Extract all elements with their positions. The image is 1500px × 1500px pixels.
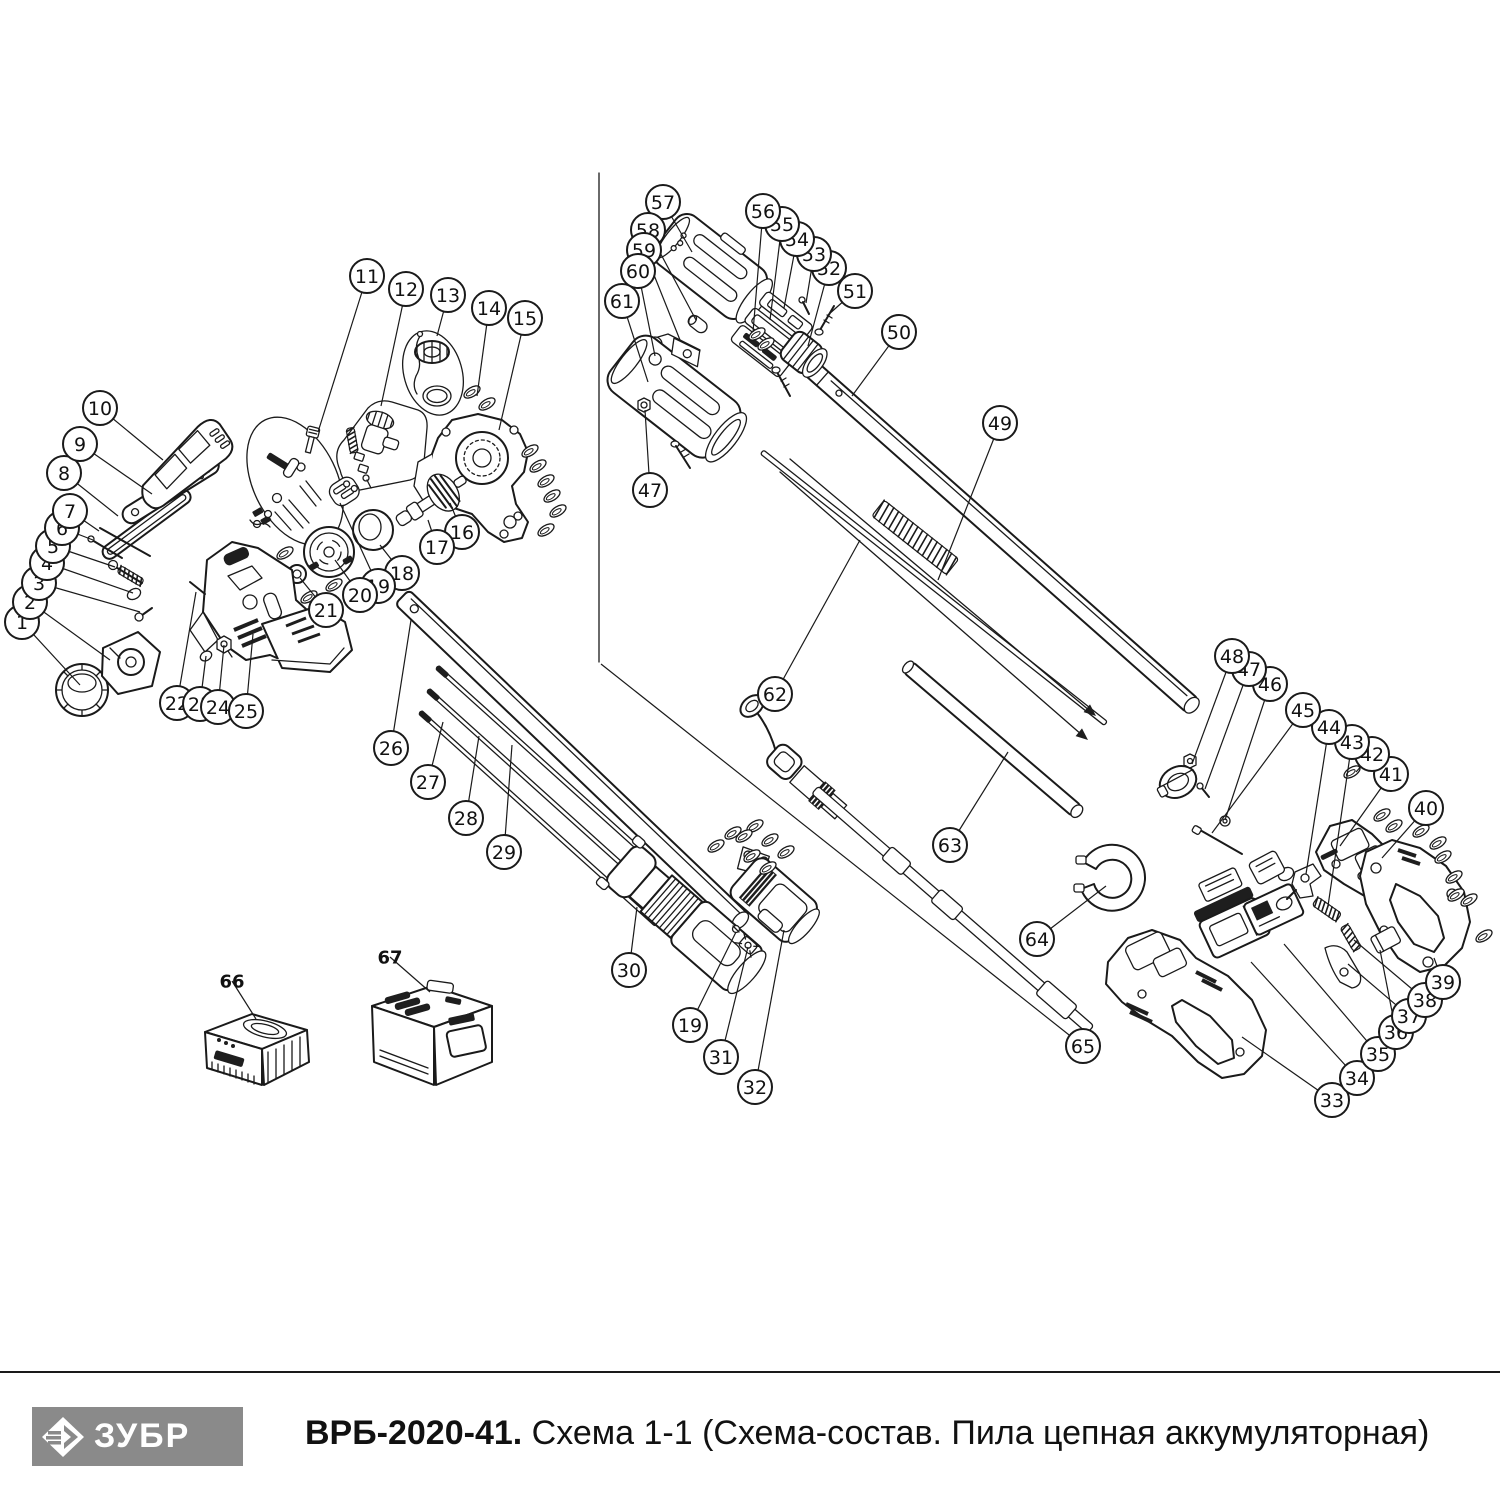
- part-5-spring-screw: [109, 561, 145, 587]
- svg-text:9: 9: [74, 434, 86, 456]
- callout-39: 39: [1426, 965, 1460, 999]
- svg-text:61: 61: [610, 291, 634, 313]
- svg-text:65: 65: [1071, 1036, 1095, 1058]
- zubr-logo: ЗУБР: [32, 1407, 243, 1466]
- svg-text:33: 33: [1320, 1090, 1344, 1112]
- diagram-title: ВРБ-2020-41. Схема 1-1 (Схема-состав. Пи…: [305, 1414, 1465, 1453]
- callout-17: 17: [420, 530, 454, 564]
- svg-text:21: 21: [314, 600, 338, 622]
- callout-27: 27: [411, 765, 445, 799]
- svg-text:19: 19: [678, 1015, 702, 1037]
- zubr-logo-text: ЗУБР: [94, 1417, 190, 1456]
- callout-11: 11: [350, 259, 384, 293]
- part-3-pin-ring: [135, 608, 152, 621]
- part-48-split-collar: [1152, 760, 1202, 806]
- callout-63: 63: [933, 828, 967, 862]
- callout-7: 7: [53, 494, 87, 528]
- scheme-name: Схема 1-1 (Схема-состав. Пила цепная акк…: [522, 1414, 1429, 1452]
- callout-13: 13: [431, 278, 465, 312]
- callout-60: 60: [621, 254, 655, 288]
- svg-text:56: 56: [751, 201, 775, 223]
- svg-text:62: 62: [763, 684, 787, 706]
- callout-12: 12: [389, 272, 423, 306]
- svg-text:30: 30: [617, 960, 641, 982]
- part-12-oil-pump-bubble: [337, 401, 427, 490]
- screw-capsule-icon: [536, 472, 556, 489]
- svg-text:64: 64: [1025, 929, 1049, 951]
- svg-text:49: 49: [988, 413, 1012, 435]
- callout-15: 15: [508, 301, 542, 335]
- part-label-67: 67: [377, 948, 402, 969]
- svg-text:51: 51: [843, 281, 867, 303]
- screw-capsule-icon: [542, 487, 562, 504]
- screw-capsule-icon: [324, 576, 344, 593]
- callout-48: 48: [1215, 639, 1249, 673]
- svg-text:47: 47: [638, 480, 662, 502]
- callout-47: 47: [633, 473, 667, 507]
- svg-text:12: 12: [394, 279, 418, 301]
- callout-26: 26: [374, 731, 408, 765]
- part-20-sprocket-clutch: [304, 527, 354, 577]
- part-19b-screw: [733, 926, 740, 933]
- callout-21: 21: [309, 593, 343, 627]
- part-66-charger: [205, 1014, 309, 1085]
- svg-text:29: 29: [492, 842, 516, 864]
- svg-text:27: 27: [416, 772, 440, 794]
- callout-leader-47: [1205, 669, 1249, 789]
- part-24-nut: [217, 636, 232, 657]
- part-58-pin: [686, 313, 710, 335]
- screw-capsule-icon: [760, 831, 780, 848]
- callout-29: 29: [487, 835, 521, 869]
- svg-text:48: 48: [1220, 646, 1244, 668]
- screw-capsule-icon: [548, 502, 568, 519]
- svg-text:17: 17: [425, 537, 449, 559]
- callout-61: 61: [605, 284, 639, 318]
- screw-capsule-icon: [275, 544, 295, 561]
- model-code: ВРБ-2020-41.: [305, 1414, 522, 1452]
- screw-capsule-icon: [1384, 817, 1404, 834]
- svg-text:28: 28: [454, 808, 478, 830]
- part-43-spring: [1312, 897, 1341, 922]
- svg-text:14: 14: [477, 298, 501, 320]
- part-39-handle-housing-right: [1360, 840, 1470, 972]
- callout-64: 64: [1020, 922, 1054, 956]
- svg-text:15: 15: [513, 308, 537, 330]
- part-38-spring: [1340, 924, 1361, 952]
- part-1-tension-knob: [56, 664, 108, 716]
- svg-text:50: 50: [887, 322, 911, 344]
- exploded-parts-diagram-page: 1234567891011121314151617181920212223242…: [0, 0, 1500, 1500]
- svg-text:45: 45: [1291, 700, 1315, 722]
- svg-text:20: 20: [348, 585, 372, 607]
- callout-49: 49: [983, 406, 1017, 440]
- callout-65: 65: [1066, 1029, 1100, 1063]
- part-47-lock-nut: [638, 398, 650, 412]
- part-64-cable-clamp: [1074, 845, 1145, 911]
- screw-capsule-icon: [706, 837, 726, 854]
- callout-45: 45: [1286, 693, 1320, 727]
- part-37-lever: [1325, 946, 1361, 988]
- svg-text:25: 25: [234, 701, 258, 723]
- exploded-view-drawing: 1234567891011121314151617181920212223242…: [0, 0, 1500, 1500]
- callout-56: 56: [746, 194, 780, 228]
- svg-text:10: 10: [88, 398, 112, 420]
- callout-leader-26: [391, 620, 411, 748]
- svg-text:35: 35: [1366, 1044, 1390, 1066]
- callout-9: 9: [63, 427, 97, 461]
- svg-text:57: 57: [651, 192, 675, 214]
- part-2-sprocket-cover: [102, 632, 160, 694]
- footer-divider: [0, 1371, 1500, 1373]
- svg-text:39: 39: [1431, 972, 1455, 994]
- part-22-pin: [190, 582, 205, 594]
- part-26-outer-pole: [395, 590, 752, 932]
- screw-capsule-icon: [1428, 834, 1448, 851]
- part-47b-pin: [1197, 783, 1209, 797]
- callout-leader-62: [775, 540, 860, 694]
- part-4-cap: [125, 586, 142, 602]
- part-67-battery-pack: [372, 980, 492, 1085]
- callout-28: 28: [449, 801, 483, 835]
- callout-30: 30: [612, 953, 646, 987]
- screw-capsule-icon: [1474, 927, 1494, 944]
- callout-leader-11: [318, 276, 367, 432]
- svg-text:34: 34: [1345, 1068, 1369, 1090]
- part-lower-drive-shaft: [809, 783, 1096, 1036]
- callout-leader-46: [1225, 684, 1270, 820]
- zubr-logo-icon: [40, 1415, 86, 1459]
- screw-capsule-icon: [477, 395, 497, 412]
- callout-10: 10: [83, 391, 117, 425]
- svg-text:44: 44: [1317, 717, 1341, 739]
- part-53-screw-small: [799, 297, 809, 314]
- screw-capsule-icon: [1372, 806, 1392, 823]
- svg-text:13: 13: [436, 285, 460, 307]
- screw-capsule-icon: [462, 383, 482, 400]
- svg-text:8: 8: [58, 463, 70, 485]
- svg-text:60: 60: [626, 261, 650, 283]
- svg-text:67: 67: [377, 948, 402, 969]
- callout-62: 62: [758, 677, 792, 711]
- screw-capsule-icon: [528, 457, 548, 474]
- callout-50: 50: [882, 315, 916, 349]
- callout-leader-45: [1212, 710, 1303, 833]
- part-label-66: 66: [219, 972, 244, 993]
- svg-text:31: 31: [709, 1047, 733, 1069]
- part-33-handle-housing-left: [1106, 930, 1266, 1078]
- callout-25: 25: [229, 694, 263, 728]
- svg-text:26: 26: [379, 738, 403, 760]
- svg-text:7: 7: [64, 501, 76, 523]
- svg-text:11: 11: [355, 266, 379, 288]
- screw-capsule-icon: [536, 521, 556, 538]
- callout-14: 14: [472, 291, 506, 325]
- callout-31: 31: [704, 1040, 738, 1074]
- svg-text:32: 32: [743, 1077, 767, 1099]
- svg-text:63: 63: [938, 835, 962, 857]
- callout-40: 40: [1409, 791, 1443, 825]
- part-48-nut: [1184, 754, 1196, 768]
- svg-text:24: 24: [206, 697, 230, 719]
- callout-32: 32: [738, 1070, 772, 1104]
- screw-capsule-icon: [776, 843, 796, 860]
- callout-19: 19: [673, 1008, 707, 1042]
- svg-text:66: 66: [219, 972, 244, 993]
- callout-20: 20: [343, 578, 377, 612]
- part-45-long-pin: [1192, 825, 1243, 854]
- svg-text:40: 40: [1414, 798, 1438, 820]
